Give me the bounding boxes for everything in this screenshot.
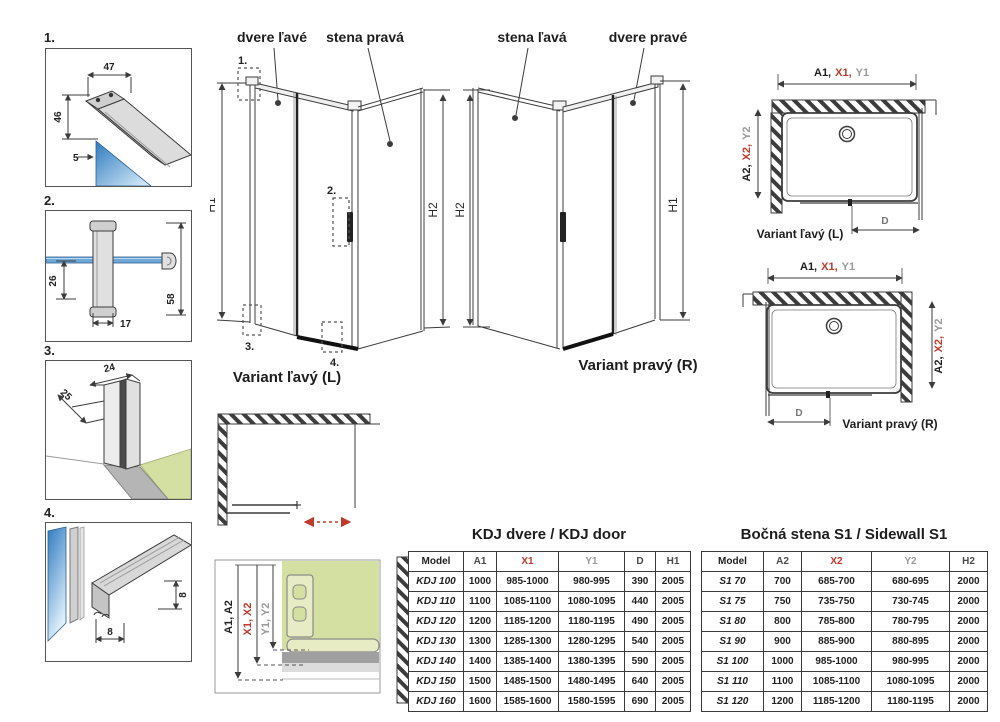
plan-left-side-dim: A2,X2,Y2: [742, 126, 753, 181]
table-cell: 490: [625, 612, 656, 632]
table-cell: 2000: [950, 572, 988, 592]
plan-left-top-dim: A1,X1,Y1: [814, 67, 869, 79]
detail-2-drawing: 26 17 58: [46, 211, 191, 341]
dimensions: [56, 223, 186, 327]
table-cell: 1185-1200: [497, 612, 559, 632]
screw-icon: [109, 93, 113, 97]
column-header: X2: [802, 552, 872, 572]
kdj-header-row: ModelA1X1Y1DH1: [409, 552, 691, 572]
table-row: KDJ 11011001085-11001080-10954402005: [409, 592, 691, 612]
table-cell: S1 120: [702, 692, 764, 712]
plan-right-door-dim: D: [795, 408, 802, 419]
table-cell: 2005: [656, 672, 691, 692]
knob-profile: [162, 253, 176, 269]
adjust-y-label: Y1, Y2: [260, 603, 272, 636]
table-cell: 2005: [656, 612, 691, 632]
left-building-wall: [771, 113, 782, 213]
table-row: S1 90900885-900880-8952000: [702, 632, 988, 652]
table-cell: S1 90: [702, 632, 764, 652]
top-building-wall: [753, 292, 901, 305]
table-cell: 2005: [656, 692, 691, 712]
table-cell: S1 100: [702, 652, 764, 672]
column-header: H1: [656, 552, 691, 572]
variant-right-drawing: H2 H1 Variant pravý (R): [453, 76, 698, 374]
table-cell: 880-895: [872, 632, 950, 652]
table-cell: 1280-1295: [559, 632, 625, 652]
table-cell: S1 70: [702, 572, 764, 592]
dim-24-label: 24: [103, 362, 117, 375]
detail-3-number: 3.: [44, 343, 55, 358]
table-cell: 1500: [464, 672, 497, 692]
plan-view-right-drawing: A1,X1,Y1 A2,X2,Y2 D Variant pravý (R): [742, 258, 954, 458]
table-cell: 1385-1400: [497, 652, 559, 672]
wall-profile-outline: [287, 575, 313, 637]
table-cell: 1200: [464, 612, 497, 632]
table-row: S1 70700685-700680-6952000: [702, 572, 988, 592]
detail-3-box: 24 25: [45, 360, 192, 500]
plan-right-caption: Variant pravý (R): [842, 417, 937, 431]
s1-table: ModelA2X2Y2H2 S1 70700685-700680-6952000…: [701, 551, 988, 712]
table-cell: 2000: [950, 592, 988, 612]
shower-enclosure-spec-sheet: 1.: [0, 0, 1000, 722]
dim-47-label: 47: [103, 62, 115, 73]
table-cell: 980-995: [872, 652, 950, 672]
table-cell: S1 110: [702, 672, 764, 692]
table-cell: 985-1000: [802, 652, 872, 672]
table-cell: 750: [764, 592, 802, 612]
table-cell: 1080-1095: [872, 672, 950, 692]
dim-25-label: 25: [58, 387, 74, 403]
table-cell: 1285-1300: [497, 632, 559, 652]
table-cell: KDJ 110: [409, 592, 464, 612]
table-cell: 800: [764, 612, 802, 632]
dim-17-label: 17: [120, 319, 132, 330]
detail-1-box: 47 46 5: [45, 48, 192, 187]
adjust-a-label: A1, A2: [223, 600, 235, 634]
table-cell: 1485-1500: [497, 672, 559, 692]
table-cell: 2000: [950, 652, 988, 672]
kdj-table-block: KDJ dvere / KDJ door ModelA1X1Y1DH1 KDJ …: [408, 524, 690, 712]
table-cell: 640: [625, 672, 656, 692]
left-building-wall: [218, 424, 227, 525]
table-cell: KDJ 120: [409, 612, 464, 632]
right-wall-label: stena pravá: [326, 29, 404, 45]
table-row: KDJ 15015001485-15001480-14956402005: [409, 672, 691, 692]
table-cell: 1000: [764, 652, 802, 672]
table-row: S1 12012001185-12001180-11952000: [702, 692, 988, 712]
dim-58-label: 58: [166, 293, 177, 305]
table-cell: 1180-1195: [559, 612, 625, 632]
top-building-wall: [772, 100, 925, 113]
adjustment-detail-drawing: A1, A2 X1, X2 Y1, Y2: [213, 555, 413, 707]
table-cell: 1300: [464, 632, 497, 652]
isometric-views-drawing: dvere ľavé stena pravá stena ľavá dvere …: [210, 20, 710, 398]
table-cell: 900: [764, 632, 802, 652]
table-cell: 2000: [950, 692, 988, 712]
detail-2-box: 26 17 58: [45, 210, 192, 342]
table-cell: 1080-1095: [559, 592, 625, 612]
right-building-wall: [901, 292, 912, 402]
handle-profile-section: [46, 221, 176, 317]
dim-26-label: 26: [48, 275, 59, 287]
dim-5-label: 5: [73, 153, 79, 164]
table-cell: 1185-1200: [802, 692, 872, 712]
leader-lines: [274, 48, 644, 147]
table-cell: 1180-1195: [872, 692, 950, 712]
column-header: X1: [497, 552, 559, 572]
detail-4-box: 8 8: [45, 522, 192, 662]
table-cell: KDJ 130: [409, 632, 464, 652]
table-row: KDJ 14014001385-14001380-13955902005: [409, 652, 691, 672]
left-door-label: dvere ľavé: [237, 29, 307, 45]
column-header: D: [625, 552, 656, 572]
table-row: S1 1001000985-1000980-9952000: [702, 652, 988, 672]
table-cell: 1380-1395: [559, 652, 625, 672]
s1-header-row: ModelA2X2Y2H2: [702, 552, 988, 572]
table-cell: 730-745: [872, 592, 950, 612]
detail-4-drawing: 8 8: [46, 523, 191, 661]
table-cell: 735-750: [802, 592, 872, 612]
column-header: Model: [409, 552, 464, 572]
table-cell: 690: [625, 692, 656, 712]
h1-dim-label-right: H1: [666, 197, 680, 213]
callout-3-label: 3.: [245, 341, 254, 353]
table-cell: 1580-1595: [559, 692, 625, 712]
door-handle: [347, 212, 353, 242]
kdj-table: ModelA1X1Y1DH1 KDJ 1001000985-1000980-99…: [408, 551, 691, 712]
column-header: Model: [702, 552, 764, 572]
plan-left-door-dim: D: [881, 216, 888, 227]
table-row: KDJ 13013001285-13001280-12955402005: [409, 632, 691, 652]
dim-8h-label: 8: [107, 627, 113, 638]
table-cell: S1 80: [702, 612, 764, 632]
table-cell: KDJ 100: [409, 572, 464, 592]
table-cell: 780-795: [872, 612, 950, 632]
plan-right-top-dim: A1,X1,Y1: [800, 261, 855, 273]
table-cell: 2000: [950, 672, 988, 692]
callout-2-label: 2.: [327, 185, 336, 197]
right-door-label: dvere pravé: [609, 29, 688, 45]
plan-view-left-drawing: A1,X1,Y1 A2,X2,Y2 D Variant ľavý (L): [742, 58, 947, 253]
table-row: S1 11011001085-11001080-10952000: [702, 672, 988, 692]
variant-right-caption: Variant pravý (R): [578, 357, 697, 374]
variant-left-caption: Variant ľavý (L): [233, 369, 341, 386]
kdj-table-title: KDJ dvere / KDJ door: [408, 524, 690, 546]
table-cell: 440: [625, 592, 656, 612]
table-cell: 2005: [656, 652, 691, 672]
bottom-rail: [297, 337, 358, 349]
dim-8v-label: 8: [178, 592, 189, 598]
door-handle: [560, 212, 566, 242]
callout-4-label: 4.: [330, 357, 339, 369]
table-cell: KDJ 140: [409, 652, 464, 672]
column-header: Y2: [872, 552, 950, 572]
callout-1-label: 1.: [238, 55, 247, 67]
table-cell: 680-695: [872, 572, 950, 592]
table-cell: KDJ 160: [409, 692, 464, 712]
table-cell: 1585-1600: [497, 692, 559, 712]
table-cell: 1000: [464, 572, 497, 592]
table-row: KDJ 12012001185-12001180-11954902005: [409, 612, 691, 632]
bottom-rail-outline: [287, 639, 379, 652]
bottom-rail: [563, 334, 613, 349]
dim-46-label: 46: [53, 111, 64, 123]
tray-edge-band: [282, 652, 379, 663]
bottom-rail-section: [48, 527, 191, 641]
top-building-wall: [218, 414, 370, 424]
table-cell: 1200: [764, 692, 802, 712]
table-cell: 2005: [656, 572, 691, 592]
table-row: KDJ 16016001585-16001580-15956902005: [409, 692, 691, 712]
table-row: KDJ 1001000985-1000980-9953902005: [409, 572, 691, 592]
table-cell: 2005: [656, 632, 691, 652]
table-cell: 1480-1495: [559, 672, 625, 692]
wall-profile-section: [86, 91, 191, 186]
table-cell: 700: [764, 572, 802, 592]
table-cell: 685-700: [802, 572, 872, 592]
variant-left-drawing: H1 1. 2.: [210, 55, 450, 386]
screw-icon: [96, 98, 100, 102]
s1-table-block: Bočná stena S1 / Sidewall S1 ModelA2X2Y2…: [701, 524, 987, 712]
plan-right-side-dim: A2,X2,Y2: [933, 318, 945, 373]
detail-1-number: 1.: [44, 30, 55, 45]
table-row: S1 75750735-750730-7452000: [702, 592, 988, 612]
table-cell: 1085-1100: [497, 592, 559, 612]
h1-dim-label-left: H1: [210, 197, 218, 213]
glass-panel: [48, 527, 66, 641]
column-header: A2: [764, 552, 802, 572]
table-cell: 1085-1100: [802, 672, 872, 692]
table-cell: 2005: [656, 592, 691, 612]
table-row: S1 80800785-800780-7952000: [702, 612, 988, 632]
detail-2-number: 2.: [44, 193, 55, 208]
table-cell: 1400: [464, 652, 497, 672]
table-cell: KDJ 150: [409, 672, 464, 692]
sliding-schematic-drawing: [215, 408, 405, 533]
table-cell: 980-995: [559, 572, 625, 592]
table-cell: 1100: [464, 592, 497, 612]
table-cell: 390: [625, 572, 656, 592]
column-header: Y1: [559, 552, 625, 572]
adjust-x-label: X1, X2: [242, 602, 254, 635]
table-cell: 2000: [950, 632, 988, 652]
detail-1-drawing: 47 46 5: [46, 49, 191, 186]
table-cell: 885-900: [802, 632, 872, 652]
h2-dim-label-right: H2: [453, 202, 467, 218]
column-header: H2: [950, 552, 988, 572]
table-cell: 590: [625, 652, 656, 672]
table-cell: 785-800: [802, 612, 872, 632]
h2-dim-label-left: H2: [426, 202, 440, 218]
column-header: A1: [464, 552, 497, 572]
table-cell: 1100: [764, 672, 802, 692]
left-wall-label: stena ľavá: [497, 29, 566, 45]
table-cell: 1600: [464, 692, 497, 712]
detail-4-number: 4.: [44, 505, 55, 520]
detail-3-drawing: 24 25: [46, 361, 191, 499]
s1-table-title: Bočná stena S1 / Sidewall S1: [701, 524, 987, 546]
plan-left-caption: Variant ľavý (L): [757, 227, 844, 241]
table-cell: 540: [625, 632, 656, 652]
table-cell: 2000: [950, 612, 988, 632]
table-cell: S1 75: [702, 592, 764, 612]
table-cell: 985-1000: [497, 572, 559, 592]
